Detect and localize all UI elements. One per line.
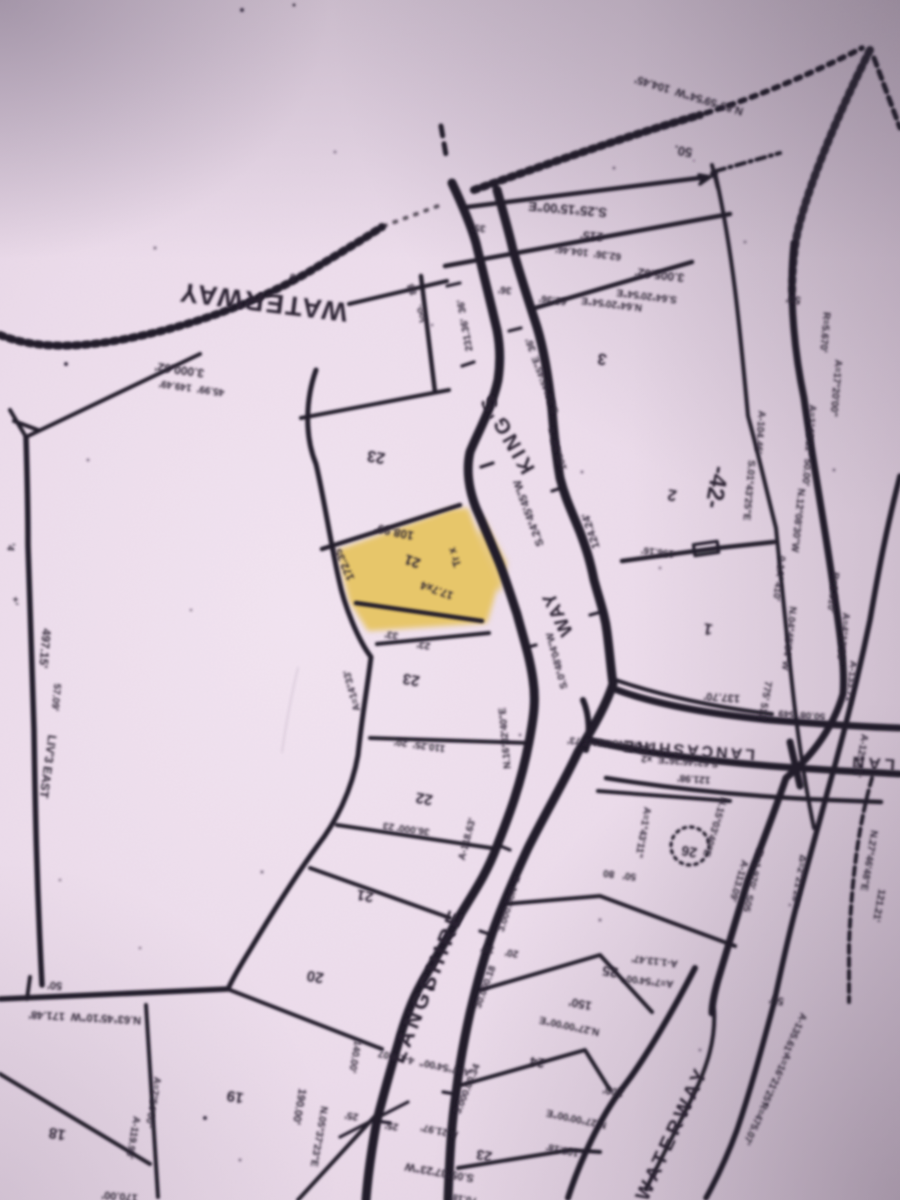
svg-text:25: 25 [601, 963, 619, 981]
svg-text:19: 19 [226, 1087, 245, 1107]
svg-text:35': 35' [472, 221, 486, 233]
svg-text:36': 36' [498, 283, 512, 295]
svg-text:33': 33' [384, 628, 399, 641]
svg-text:20: 20 [306, 967, 325, 987]
svg-text:215': 215' [580, 228, 604, 244]
svg-text:25': 25' [384, 1119, 399, 1132]
svg-text:23': 23' [416, 638, 431, 651]
svg-text:21: 21 [356, 886, 375, 906]
svg-text:23: 23 [475, 1147, 493, 1165]
svg-text:18: 18 [48, 1124, 67, 1144]
svg-text:22: 22 [415, 789, 434, 809]
svg-text:121.98': 121.98' [677, 772, 711, 785]
svg-text:23: 23 [402, 670, 421, 690]
svg-text:23: 23 [366, 446, 387, 466]
svg-text:26: 26 [680, 843, 698, 861]
svg-text:25': 25' [344, 1109, 359, 1122]
svg-text:137.70': 137.70' [703, 690, 740, 705]
svg-text:50': 50' [46, 978, 62, 991]
svg-text:50.: 50. [673, 142, 693, 160]
